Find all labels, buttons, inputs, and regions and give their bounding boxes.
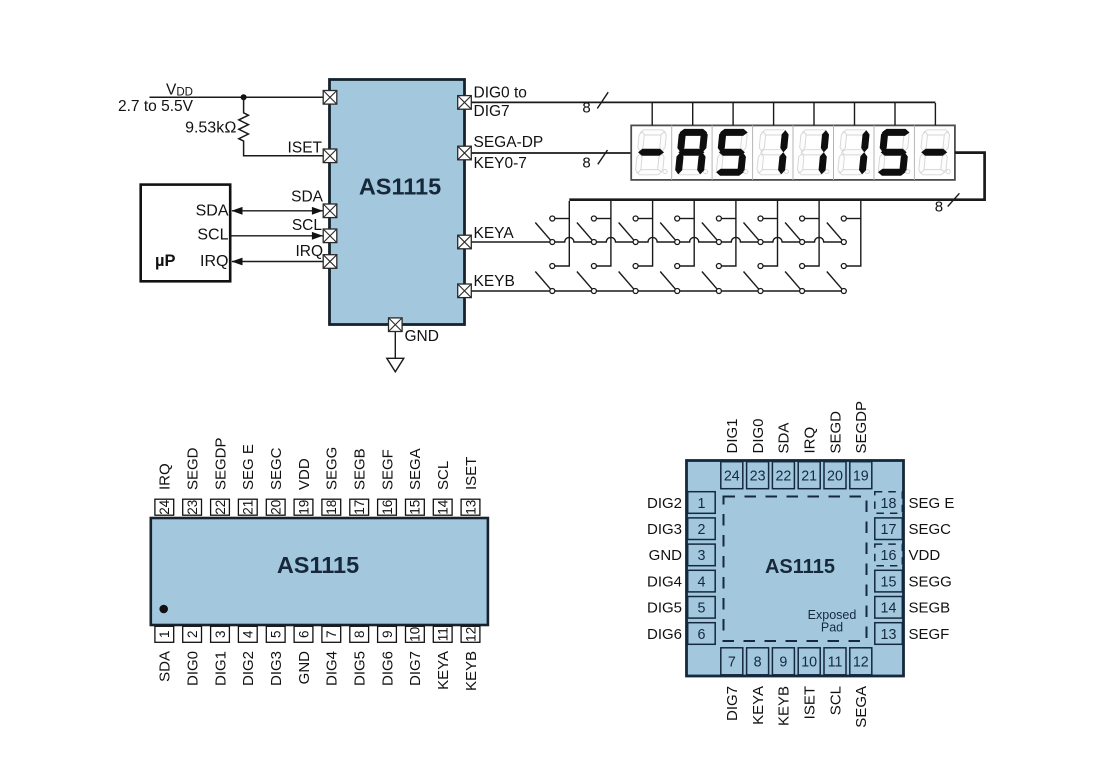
svg-text:24: 24 [157, 499, 172, 515]
svg-text:DIG7: DIG7 [407, 651, 424, 686]
svg-text:VDD: VDD [296, 458, 313, 490]
svg-text:DIG1: DIG1 [212, 651, 229, 686]
svg-text:KEYB: KEYB [474, 273, 515, 290]
svg-text:4: 4 [241, 630, 256, 638]
svg-text:6: 6 [698, 627, 706, 643]
svg-text:SCL: SCL [292, 217, 323, 234]
svg-text:2: 2 [698, 522, 706, 538]
svg-text:GND: GND [649, 547, 683, 564]
svg-text:SEGF: SEGF [379, 449, 396, 490]
svg-text:DIG5: DIG5 [352, 651, 369, 686]
svg-text:SEGB: SEGB [909, 600, 951, 617]
svg-text:8: 8 [754, 655, 762, 671]
svg-text:DIG3: DIG3 [268, 651, 285, 686]
svg-text:5: 5 [269, 631, 284, 639]
svg-text:8: 8 [935, 199, 943, 216]
svg-text:KEY0-7: KEY0-7 [474, 155, 527, 172]
svg-text:AS1115: AS1115 [277, 552, 359, 578]
svg-text:6: 6 [296, 631, 311, 639]
svg-text:ISET: ISET [463, 457, 480, 490]
svg-text:AS1115: AS1115 [359, 174, 441, 200]
svg-text:7: 7 [324, 631, 339, 639]
svg-text:8: 8 [582, 154, 590, 171]
svg-text:3: 3 [213, 631, 228, 639]
svg-text:IRQ: IRQ [157, 463, 174, 490]
svg-text:SDA: SDA [776, 423, 793, 454]
svg-text:DIG5: DIG5 [647, 600, 682, 617]
svg-text:KEYA: KEYA [474, 225, 515, 242]
svg-text:SEG E: SEG E [240, 444, 257, 490]
svg-text:8: 8 [352, 631, 367, 639]
svg-text:GND: GND [405, 328, 439, 345]
svg-text:KEYB: KEYB [776, 686, 793, 726]
svg-text:13: 13 [881, 627, 897, 643]
svg-text:DIG6: DIG6 [379, 651, 396, 686]
svg-text:20: 20 [269, 500, 284, 515]
svg-text:5: 5 [698, 601, 706, 617]
svg-text:12: 12 [463, 627, 478, 642]
svg-text:KEYA: KEYA [750, 686, 767, 725]
svg-text:SEG E: SEG E [909, 495, 955, 512]
svg-text:15: 15 [408, 500, 423, 515]
svg-text:9.53kΩ: 9.53kΩ [185, 120, 236, 137]
svg-text:DIG2: DIG2 [240, 651, 257, 686]
svg-text:SEGDP: SEGDP [212, 437, 229, 490]
svg-text:13: 13 [463, 500, 478, 515]
svg-text:SEGD: SEGD [184, 447, 201, 490]
svg-text:SEGD: SEGD [827, 411, 844, 454]
svg-text:SEGB: SEGB [352, 448, 369, 490]
svg-text:KEYA: KEYA [435, 651, 452, 690]
svg-text:SEGDP: SEGDP [853, 401, 870, 454]
svg-text:10: 10 [408, 627, 423, 642]
svg-text:19: 19 [853, 469, 869, 485]
svg-text:21: 21 [801, 469, 817, 485]
svg-text:11: 11 [828, 655, 843, 671]
svg-text:ISET: ISET [802, 686, 819, 719]
svg-text:21: 21 [241, 500, 256, 515]
svg-text:23: 23 [185, 500, 200, 515]
svg-text:SDA: SDA [157, 651, 174, 682]
svg-text:SCL: SCL [197, 227, 228, 244]
svg-text:SEGA: SEGA [407, 448, 424, 490]
svg-text:DIG3: DIG3 [647, 521, 682, 538]
svg-text:VDD: VDD [909, 547, 941, 564]
svg-text:SCL: SCL [435, 461, 452, 490]
svg-text:17: 17 [881, 522, 897, 538]
svg-text:SEGC: SEGC [268, 447, 285, 490]
svg-text:18: 18 [881, 496, 897, 512]
svg-text:SDA: SDA [291, 189, 324, 206]
svg-text:IRQ: IRQ [200, 253, 228, 270]
svg-text:16: 16 [881, 548, 897, 564]
svg-text:DIG0: DIG0 [184, 651, 201, 686]
svg-text:14: 14 [436, 499, 451, 515]
svg-text:DIG0 to: DIG0 to [474, 85, 527, 102]
svg-text:SEGC: SEGC [909, 521, 952, 538]
svg-text:22: 22 [213, 500, 228, 515]
svg-text:16: 16 [380, 500, 395, 515]
svg-text:SEGF: SEGF [909, 626, 950, 643]
svg-text:15: 15 [881, 574, 897, 590]
svg-text:SEGG: SEGG [909, 573, 952, 590]
svg-text:18: 18 [324, 500, 339, 515]
svg-text:23: 23 [750, 469, 766, 485]
svg-text:SEGA-DP: SEGA-DP [474, 134, 544, 151]
svg-text:2: 2 [185, 631, 200, 639]
svg-text:9: 9 [380, 631, 395, 639]
svg-text:20: 20 [827, 469, 843, 485]
svg-text:11: 11 [436, 627, 451, 641]
svg-text:DIG7: DIG7 [474, 103, 510, 120]
svg-text:SEGG: SEGG [324, 447, 341, 490]
svg-text:DIG2: DIG2 [647, 495, 682, 512]
svg-text:IRQ: IRQ [802, 427, 819, 454]
svg-text:ISET: ISET [288, 139, 323, 156]
svg-text:DIG0: DIG0 [750, 418, 767, 453]
svg-text:1: 1 [698, 496, 706, 512]
svg-text:AS1115: AS1115 [765, 556, 835, 578]
svg-text:1: 1 [157, 631, 172, 639]
svg-text:SEGA: SEGA [853, 686, 870, 728]
svg-text:8: 8 [582, 100, 590, 117]
svg-text:4: 4 [698, 574, 706, 590]
svg-text:10: 10 [801, 655, 817, 671]
svg-text:DIG7: DIG7 [724, 686, 741, 721]
svg-text:SCL: SCL [827, 686, 844, 715]
svg-text:SDA: SDA [196, 203, 229, 220]
svg-text:KEYB: KEYB [463, 651, 480, 691]
svg-text:IRQ: IRQ [295, 243, 323, 260]
svg-text:24: 24 [724, 469, 740, 485]
svg-text:17: 17 [352, 500, 367, 515]
svg-text:µP: µP [155, 252, 176, 270]
svg-text:DIG4: DIG4 [324, 651, 341, 686]
svg-text:7: 7 [728, 655, 736, 671]
svg-text:DIG1: DIG1 [724, 418, 741, 453]
svg-text:DIG6: DIG6 [647, 626, 682, 643]
svg-text:2.7 to 5.5V: 2.7 to 5.5V [118, 98, 194, 115]
svg-text:Pad: Pad [821, 621, 843, 635]
svg-text:GND: GND [296, 651, 313, 685]
svg-text:19: 19 [296, 500, 311, 515]
svg-text:12: 12 [853, 655, 869, 671]
svg-text:9: 9 [779, 655, 787, 671]
svg-text:22: 22 [775, 469, 791, 485]
svg-text:DIG4: DIG4 [647, 573, 682, 590]
svg-text:3: 3 [698, 548, 706, 564]
svg-text:14: 14 [881, 601, 897, 617]
